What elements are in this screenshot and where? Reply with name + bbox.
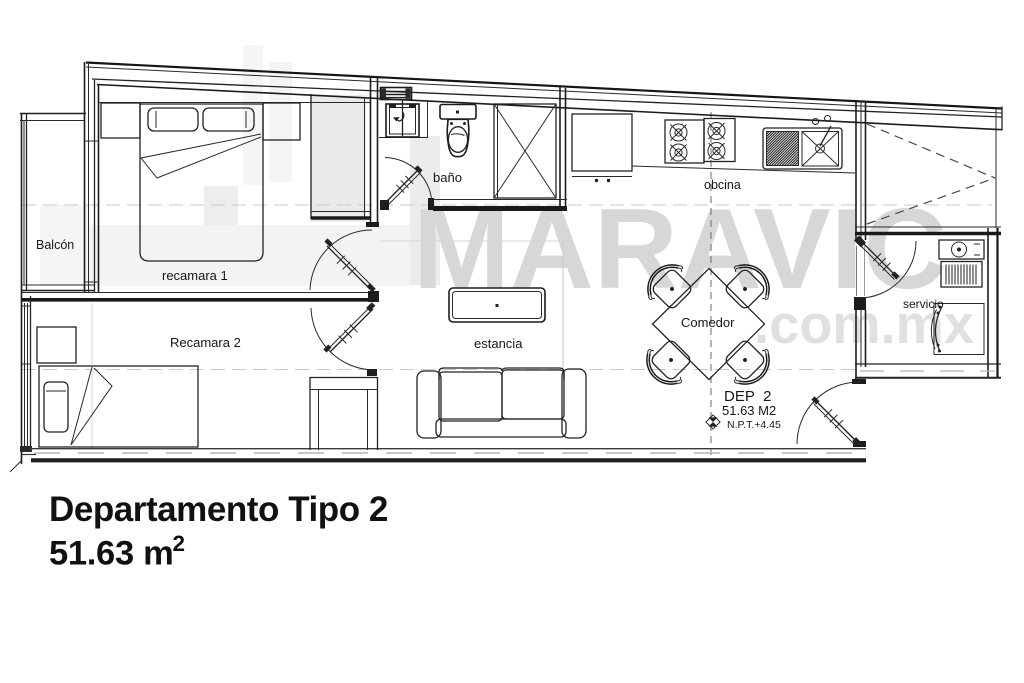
svg-text:Departamento Tipo 2: Departamento Tipo 2 <box>49 490 388 529</box>
svg-text:baño: baño <box>433 170 462 185</box>
svg-text:51.63 m: 51.63 m <box>49 534 174 572</box>
svg-text:N.P.T.+4.45: N.P.T.+4.45 <box>727 419 781 431</box>
svg-text:51.63 M2: 51.63 M2 <box>722 403 776 418</box>
svg-text:obcina: obcina <box>704 178 741 192</box>
svg-text:recamara 1: recamara 1 <box>162 268 228 283</box>
svg-text:estancia: estancia <box>474 336 523 351</box>
svg-text:Balcón: Balcón <box>36 238 74 252</box>
svg-text:servicio: servicio <box>903 297 944 311</box>
svg-text:2: 2 <box>173 531 186 556</box>
svg-text:Recamara 2: Recamara 2 <box>170 335 241 350</box>
svg-text:Comedor: Comedor <box>681 315 735 330</box>
